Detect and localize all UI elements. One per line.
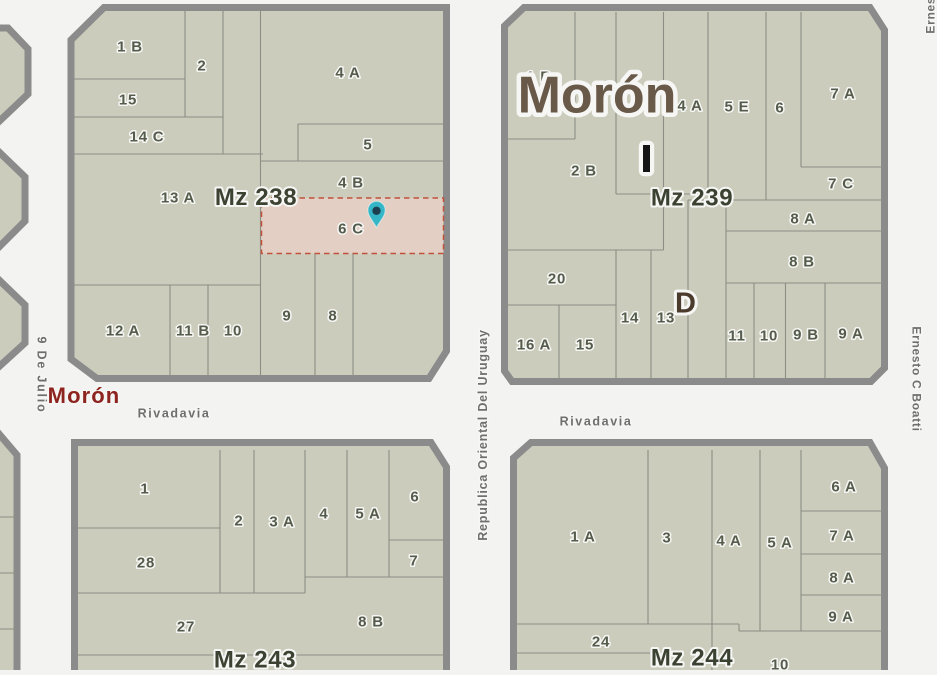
svg-text:4 B: 4 B — [338, 174, 364, 191]
svg-text:7 A: 7 A — [829, 527, 854, 544]
svg-text:4: 4 — [319, 505, 328, 522]
svg-text:1 B: 1 B — [117, 38, 143, 55]
svg-text:Rivadavia: Rivadavia — [138, 407, 211, 421]
svg-text:8 A: 8 A — [790, 210, 815, 227]
svg-text:3 A: 3 A — [269, 513, 294, 530]
svg-text:Rivadavia: Rivadavia — [560, 415, 633, 429]
svg-text:5 A: 5 A — [355, 505, 380, 522]
svg-text:2 B: 2 B — [571, 162, 597, 179]
svg-text:Mz 238: Mz 238 — [215, 184, 297, 211]
svg-text:14: 14 — [621, 309, 639, 326]
svg-text:9 A: 9 A — [828, 608, 853, 625]
svg-text:15: 15 — [119, 91, 137, 108]
svg-text:16 A: 16 A — [517, 336, 551, 353]
svg-text:8 A: 8 A — [829, 569, 854, 586]
svg-text:4 A: 4 A — [335, 64, 360, 81]
svg-text:Mz 239: Mz 239 — [651, 185, 733, 212]
svg-text:10: 10 — [224, 322, 242, 339]
svg-text:27: 27 — [177, 618, 195, 635]
svg-text:8: 8 — [328, 307, 337, 324]
svg-text:9: 9 — [282, 307, 291, 324]
svg-text:28: 28 — [137, 554, 155, 571]
svg-text:10: 10 — [760, 327, 778, 344]
svg-text:20: 20 — [548, 270, 566, 287]
svg-text:9 B: 9 B — [793, 326, 819, 343]
svg-text:Ernesto C Boatti: Ernesto C Boatti — [910, 326, 924, 431]
svg-text:7: 7 — [409, 552, 418, 569]
svg-text:4 A: 4 A — [716, 532, 741, 549]
svg-text:5: 5 — [363, 136, 372, 153]
svg-text:1 A: 1 A — [570, 528, 595, 545]
svg-text:Morón: Morón — [518, 67, 677, 125]
svg-text:7 A: 7 A — [830, 85, 855, 102]
svg-text:8 B: 8 B — [358, 613, 384, 630]
svg-text:Mz 244: Mz 244 — [651, 645, 733, 670]
svg-text:Republica Oriental Del Uruguay: Republica Oriental Del Uruguay — [476, 329, 490, 541]
svg-text:2: 2 — [234, 512, 243, 529]
svg-text:13: 13 — [657, 309, 675, 326]
svg-text:15: 15 — [576, 336, 594, 353]
svg-text:D: D — [675, 287, 696, 319]
svg-text:1: 1 — [140, 480, 149, 497]
svg-text:5 E: 5 E — [725, 98, 750, 115]
svg-text:5 A: 5 A — [767, 534, 792, 551]
svg-text:11: 11 — [728, 327, 745, 344]
svg-text:14 C: 14 C — [130, 128, 165, 145]
svg-text:9 De Julio: 9 De Julio — [35, 336, 49, 413]
svg-text:12 A: 12 A — [106, 322, 140, 339]
svg-text:9 A: 9 A — [838, 325, 863, 342]
svg-text:6: 6 — [410, 488, 419, 505]
svg-text:6: 6 — [775, 99, 784, 116]
svg-text:Ernesto C Boatti: Ernesto C Boatti — [923, 0, 937, 34]
svg-text:3: 3 — [662, 529, 671, 546]
svg-text:Morón: Morón — [48, 383, 121, 408]
svg-text:13 A: 13 A — [161, 189, 195, 206]
svg-text:8 B: 8 B — [789, 253, 815, 270]
svg-text:2: 2 — [197, 57, 206, 74]
svg-text:4 A: 4 A — [677, 97, 702, 114]
svg-text:11 B: 11 B — [176, 322, 210, 339]
svg-text:24: 24 — [592, 633, 610, 650]
svg-text:10: 10 — [771, 656, 789, 670]
svg-text:7 C: 7 C — [828, 175, 854, 192]
svg-text:6 C: 6 C — [338, 220, 364, 237]
svg-text:Mz 243: Mz 243 — [214, 647, 296, 670]
svg-text:6 A: 6 A — [831, 478, 856, 495]
